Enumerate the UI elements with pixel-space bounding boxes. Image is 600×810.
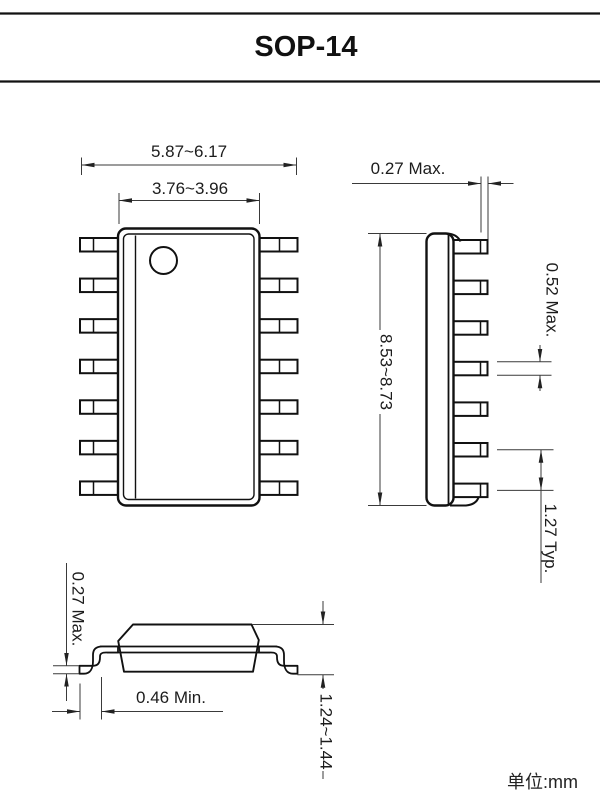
- side-view-pins: [454, 240, 488, 497]
- pin: [454, 281, 488, 295]
- top-view-pins-right: [260, 238, 298, 495]
- pin: [260, 441, 298, 455]
- side-body-outline: [427, 234, 454, 506]
- dim-lead-foot-thickness-label: 0.27 Max.: [69, 572, 88, 647]
- pin: [260, 238, 298, 252]
- pin: [260, 400, 298, 414]
- dim-lead-width-label: 0.52 Max.: [543, 263, 562, 338]
- pin: [80, 481, 118, 495]
- pin: [260, 279, 298, 293]
- dim-body-width-label: 3.76~3.96: [152, 179, 228, 198]
- pin: [80, 279, 118, 293]
- end-body-outline: [118, 625, 259, 672]
- pin: [80, 360, 118, 374]
- unit-note: 单位:mm: [507, 772, 578, 792]
- pin: [260, 319, 298, 333]
- pin: [454, 484, 488, 498]
- page-title: SOP-14: [254, 31, 357, 63]
- pin: [260, 481, 298, 495]
- pin: [80, 319, 118, 333]
- pin: [80, 400, 118, 414]
- dim-foot-length-label: 0.46 Min.: [136, 688, 206, 707]
- side-view: 0.27 Max. 8.53~8.73 0.52 Max. 1.27 Typ.: [352, 159, 562, 583]
- pin: [454, 321, 488, 335]
- dim-lead-pitch-label: 1.27 Typ.: [541, 504, 560, 574]
- dim-overall-width-label: 5.87~6.17: [151, 142, 227, 161]
- pin: [454, 240, 488, 254]
- pin: [454, 443, 488, 457]
- pin: [260, 360, 298, 374]
- pin: [454, 362, 488, 376]
- footer: 单位:mm: [507, 772, 578, 792]
- top-view: 5.87~6.17 3.76~3.96: [80, 142, 298, 506]
- package-body-outline: [118, 229, 260, 506]
- sop14-package-drawing: SOP-14 5.87~6.17 3.76~3.96 0.27 Max.: [0, 0, 600, 810]
- end-view: 0.27 Max. 0.46 Min. 1.24~1.44: [52, 563, 336, 779]
- dim-lead-tip-thickness-label: 0.27 Max.: [371, 159, 446, 178]
- dim-body-length-label: 8.53~8.73: [377, 334, 396, 410]
- header: SOP-14: [0, 14, 600, 82]
- top-view-pins-left: [80, 238, 118, 495]
- pin: [80, 441, 118, 455]
- pin: [80, 238, 118, 252]
- pin: [454, 402, 488, 416]
- lead-left: [80, 647, 119, 674]
- lead-right: [259, 647, 298, 674]
- pin1-marker: [150, 247, 177, 274]
- dim-overall-height-label: 1.24~1.44: [317, 693, 336, 769]
